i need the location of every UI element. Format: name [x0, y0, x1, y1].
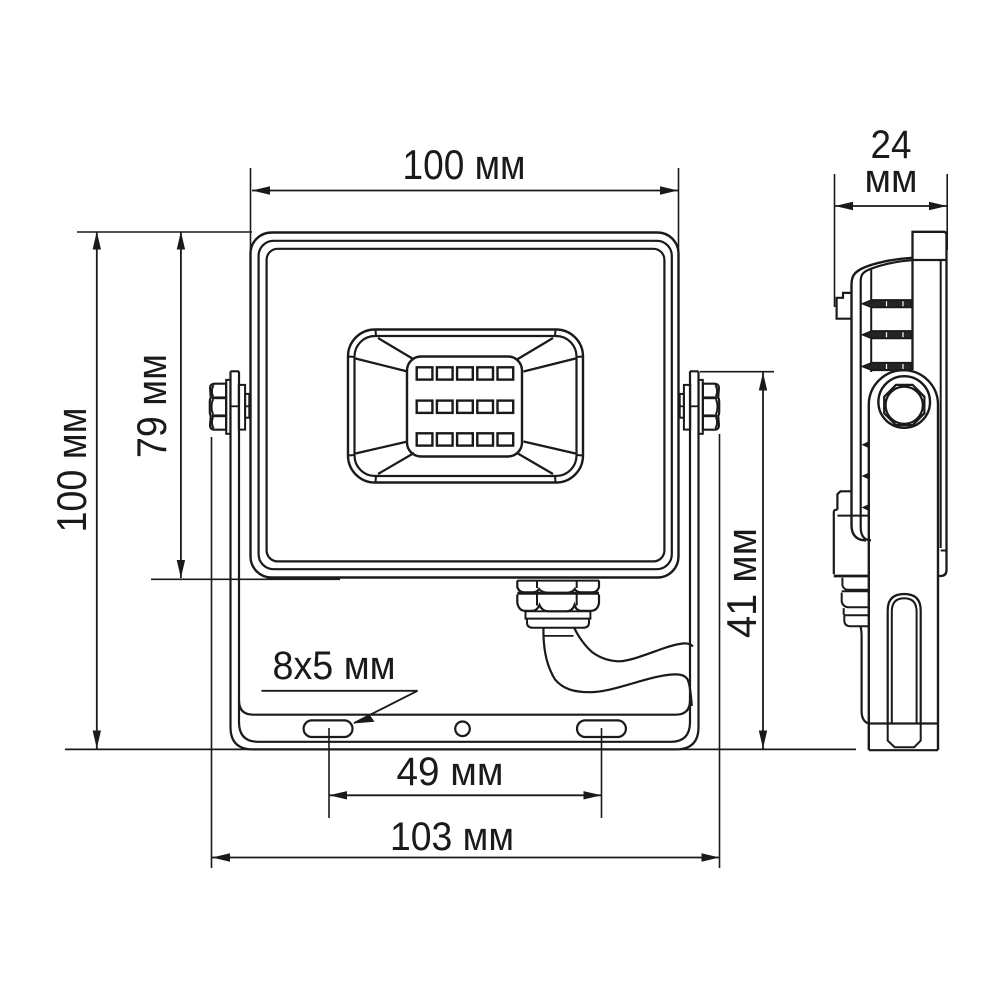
svg-text:100 мм: 100 мм [48, 408, 95, 533]
svg-text:41 мм: 41 мм [718, 528, 765, 638]
svg-text:мм: мм [865, 157, 918, 201]
svg-text:103 мм: 103 мм [390, 815, 514, 859]
svg-text:100 мм: 100 мм [403, 141, 526, 188]
svg-text:49 мм: 49 мм [397, 750, 504, 794]
svg-text:79 мм: 79 мм [128, 354, 175, 458]
svg-text:8x5 мм: 8x5 мм [273, 644, 396, 688]
